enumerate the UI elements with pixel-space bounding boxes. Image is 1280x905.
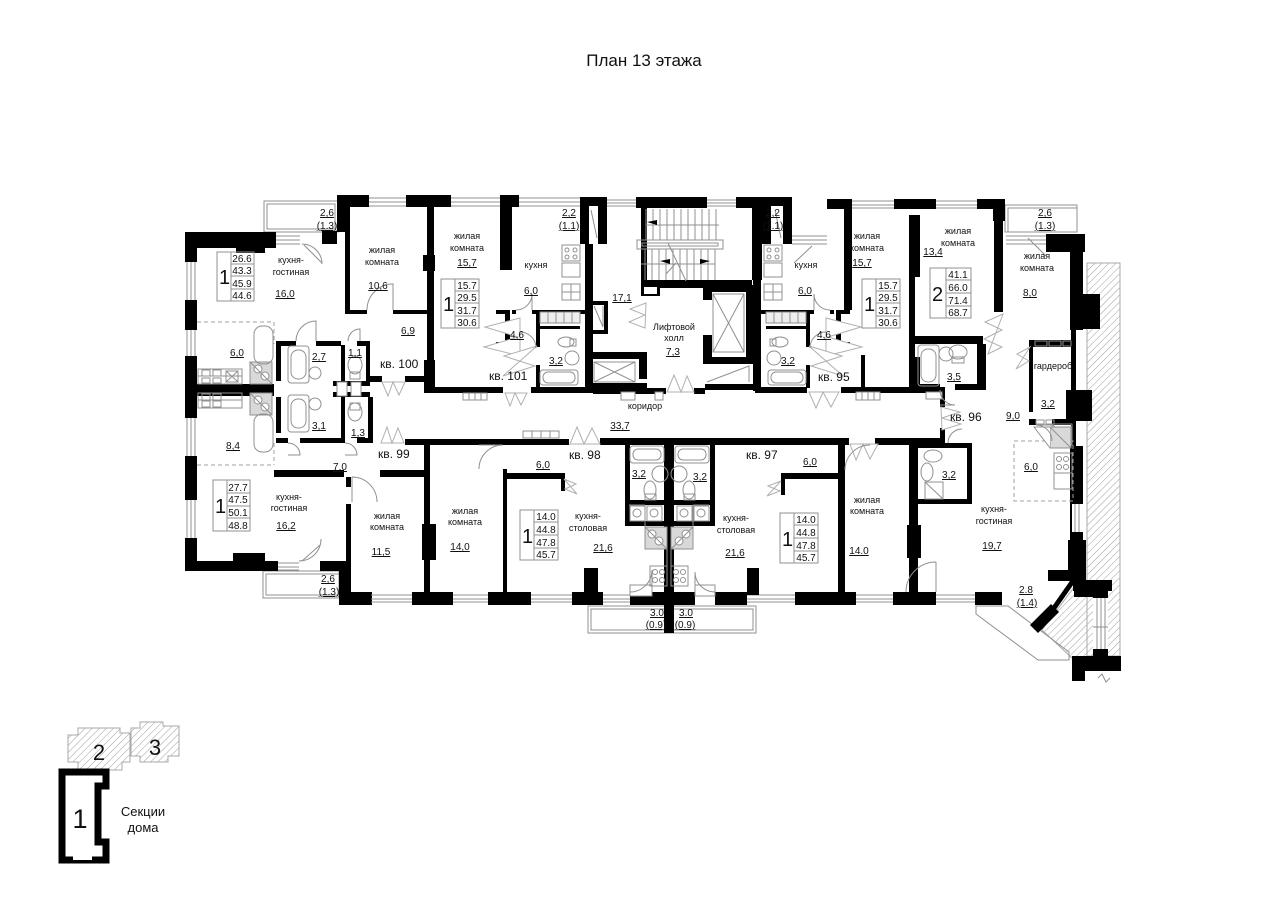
svg-text:2,2: 2,2 <box>766 208 780 219</box>
svg-text:кв. 101: кв. 101 <box>489 369 528 383</box>
svg-text:8,0: 8,0 <box>1023 288 1037 299</box>
svg-text:19,7: 19,7 <box>982 541 1002 552</box>
svg-text:3,2: 3,2 <box>693 472 707 483</box>
svg-text:6,0: 6,0 <box>536 460 550 471</box>
svg-text:44.8: 44.8 <box>536 525 556 536</box>
svg-text:гостиная: гостиная <box>976 516 1013 526</box>
svg-text:16,2: 16,2 <box>276 521 296 532</box>
svg-text:кухня-: кухня- <box>278 255 304 265</box>
svg-text:3,5: 3,5 <box>947 372 961 383</box>
svg-text:44.8: 44.8 <box>796 528 816 539</box>
svg-text:30.6: 30.6 <box>457 318 477 329</box>
svg-text:(1.3): (1.3) <box>1035 221 1056 232</box>
svg-text:(1.1): (1.1) <box>559 221 580 232</box>
svg-text:гардероб: гардероб <box>1034 361 1072 371</box>
svg-text:2,2: 2,2 <box>562 208 576 219</box>
svg-text:1: 1 <box>443 294 454 316</box>
svg-text:8,4: 8,4 <box>226 441 240 452</box>
svg-text:14.0: 14.0 <box>536 512 556 523</box>
svg-text:3,2: 3,2 <box>781 356 795 367</box>
svg-text:1,3: 1,3 <box>351 428 365 439</box>
svg-text:1: 1 <box>215 496 226 518</box>
svg-text:(0.9): (0.9) <box>675 620 696 631</box>
svg-text:кухня-: кухня- <box>276 492 302 502</box>
svg-text:29.5: 29.5 <box>457 293 477 304</box>
svg-text:кв. 99: кв. 99 <box>378 447 410 461</box>
svg-text:31.7: 31.7 <box>457 306 477 317</box>
svg-text:6,9: 6,9 <box>401 326 415 337</box>
svg-text:14.0: 14.0 <box>796 515 816 526</box>
svg-text:дома: дома <box>128 820 160 835</box>
svg-text:жилая: жилая <box>1024 251 1050 261</box>
svg-text:кухня: кухня <box>795 260 818 270</box>
svg-text:1: 1 <box>219 267 230 289</box>
svg-text:комната: комната <box>370 522 404 532</box>
svg-text:29.5: 29.5 <box>878 293 898 304</box>
svg-text:жилая: жилая <box>452 506 478 516</box>
svg-text:1: 1 <box>864 294 875 316</box>
svg-text:71.4: 71.4 <box>948 296 968 307</box>
svg-text:жилая: жилая <box>374 511 400 521</box>
svg-text:кухня-: кухня- <box>575 511 601 521</box>
svg-text:жилая: жилая <box>945 226 971 236</box>
svg-text:1: 1 <box>72 804 87 834</box>
svg-text:14.0: 14.0 <box>849 546 869 557</box>
svg-text:6,0: 6,0 <box>798 286 812 297</box>
svg-text:жилая: жилая <box>854 231 880 241</box>
svg-text:6,0: 6,0 <box>524 286 538 297</box>
svg-text:кухня: кухня <box>525 260 548 270</box>
svg-text:48.8: 48.8 <box>228 521 248 532</box>
svg-text:14,0: 14,0 <box>450 542 470 553</box>
svg-text:66.0: 66.0 <box>948 283 968 294</box>
svg-text:столовая: столовая <box>569 523 607 533</box>
svg-text:15.7: 15.7 <box>457 281 477 292</box>
svg-text:3,2: 3,2 <box>549 356 563 367</box>
svg-text:47.8: 47.8 <box>536 538 556 549</box>
svg-text:27.7: 27.7 <box>228 483 248 494</box>
svg-text:(0.9): (0.9) <box>646 620 667 631</box>
svg-text:гостиная: гостиная <box>271 503 308 513</box>
svg-text:10,6: 10,6 <box>368 281 388 292</box>
svg-text:43.3: 43.3 <box>232 266 252 277</box>
svg-text:Секции: Секции <box>121 804 165 819</box>
svg-text:2: 2 <box>932 284 943 306</box>
svg-text:6,0: 6,0 <box>230 348 244 359</box>
svg-text:1: 1 <box>782 529 793 551</box>
svg-text:33,7: 33,7 <box>610 421 630 432</box>
svg-text:41.1: 41.1 <box>948 270 968 281</box>
svg-text:1: 1 <box>522 526 533 548</box>
svg-text:2,6: 2,6 <box>320 208 334 219</box>
svg-text:47.5: 47.5 <box>228 495 248 506</box>
svg-text:9,0: 9,0 <box>1006 411 1020 422</box>
svg-text:4,6: 4,6 <box>817 330 831 341</box>
svg-text:3,1: 3,1 <box>312 421 326 432</box>
svg-text:68.7: 68.7 <box>948 308 968 319</box>
svg-text:жилая: жилая <box>454 231 480 241</box>
svg-text:столовая: столовая <box>717 525 755 535</box>
svg-text:3,2: 3,2 <box>1041 399 1055 410</box>
svg-text:31.7: 31.7 <box>878 306 898 317</box>
svg-text:21,6: 21,6 <box>725 548 745 559</box>
svg-text:комната: комната <box>448 517 482 527</box>
svg-text:45.7: 45.7 <box>536 550 556 561</box>
svg-text:7,3: 7,3 <box>666 347 680 358</box>
svg-text:13,4: 13,4 <box>923 247 943 258</box>
svg-text:2,7: 2,7 <box>312 352 326 363</box>
svg-text:3.0: 3.0 <box>650 608 664 619</box>
svg-text:2,6: 2,6 <box>1038 208 1052 219</box>
svg-text:2,6: 2,6 <box>321 574 335 585</box>
svg-text:3.0: 3.0 <box>679 608 693 619</box>
svg-text:Лифтовой: Лифтовой <box>653 322 695 332</box>
svg-text:4,6: 4,6 <box>510 330 524 341</box>
svg-text:7,0: 7,0 <box>333 462 347 473</box>
svg-text:17,1: 17,1 <box>612 293 632 304</box>
svg-text:кухня-: кухня- <box>981 504 1007 514</box>
svg-text:комната: комната <box>365 257 399 267</box>
svg-text:кв. 97: кв. 97 <box>746 448 778 462</box>
svg-text:холл: холл <box>664 333 684 343</box>
svg-text:(1.4): (1.4) <box>1017 598 1038 609</box>
svg-text:2: 2 <box>93 740 105 765</box>
svg-text:45.9: 45.9 <box>232 279 252 290</box>
svg-text:жилая: жилая <box>369 245 395 255</box>
svg-text:План 13 этажа: План 13 этажа <box>586 51 702 70</box>
svg-text:кухня-: кухня- <box>723 513 749 523</box>
svg-text:26.6: 26.6 <box>232 254 252 265</box>
svg-text:кв. 100: кв. 100 <box>380 357 419 371</box>
svg-text:15.7: 15.7 <box>878 281 898 292</box>
svg-text:(1.1): (1.1) <box>763 221 784 232</box>
svg-text:47.8: 47.8 <box>796 541 816 552</box>
svg-text:кв. 95: кв. 95 <box>818 370 850 384</box>
svg-text:комната: комната <box>941 238 975 248</box>
svg-text:2.8: 2.8 <box>1019 585 1033 596</box>
svg-text:(1.3): (1.3) <box>319 587 340 598</box>
svg-text:кв. 98: кв. 98 <box>569 448 601 462</box>
svg-text:комната: комната <box>850 243 884 253</box>
svg-text:3: 3 <box>149 735 161 760</box>
svg-text:6,0: 6,0 <box>1024 462 1038 473</box>
svg-text:44.6: 44.6 <box>232 291 252 302</box>
svg-text:15,7: 15,7 <box>852 258 872 269</box>
svg-text:50.1: 50.1 <box>228 508 248 519</box>
svg-text:6,0: 6,0 <box>803 457 817 468</box>
svg-text:кв. 96: кв. 96 <box>950 410 982 424</box>
svg-text:11,5: 11,5 <box>372 547 391 558</box>
svg-text:гостиная: гостиная <box>273 267 310 277</box>
svg-text:коридор: коридор <box>628 401 662 411</box>
svg-text:3,2: 3,2 <box>632 469 646 480</box>
svg-text:3,2: 3,2 <box>942 470 956 481</box>
svg-text:15,7: 15,7 <box>457 258 477 269</box>
svg-text:комната: комната <box>450 243 484 253</box>
svg-text:16,0: 16,0 <box>275 289 295 300</box>
svg-text:21,6: 21,6 <box>593 543 613 554</box>
svg-text:жилая: жилая <box>854 495 880 505</box>
svg-text:комната: комната <box>1020 263 1054 273</box>
svg-text:30.6: 30.6 <box>878 318 898 329</box>
svg-text:45.7: 45.7 <box>796 553 816 564</box>
svg-text:комната: комната <box>850 506 884 516</box>
svg-text:1,1: 1,1 <box>348 348 362 359</box>
svg-text:(1.3): (1.3) <box>317 221 338 232</box>
